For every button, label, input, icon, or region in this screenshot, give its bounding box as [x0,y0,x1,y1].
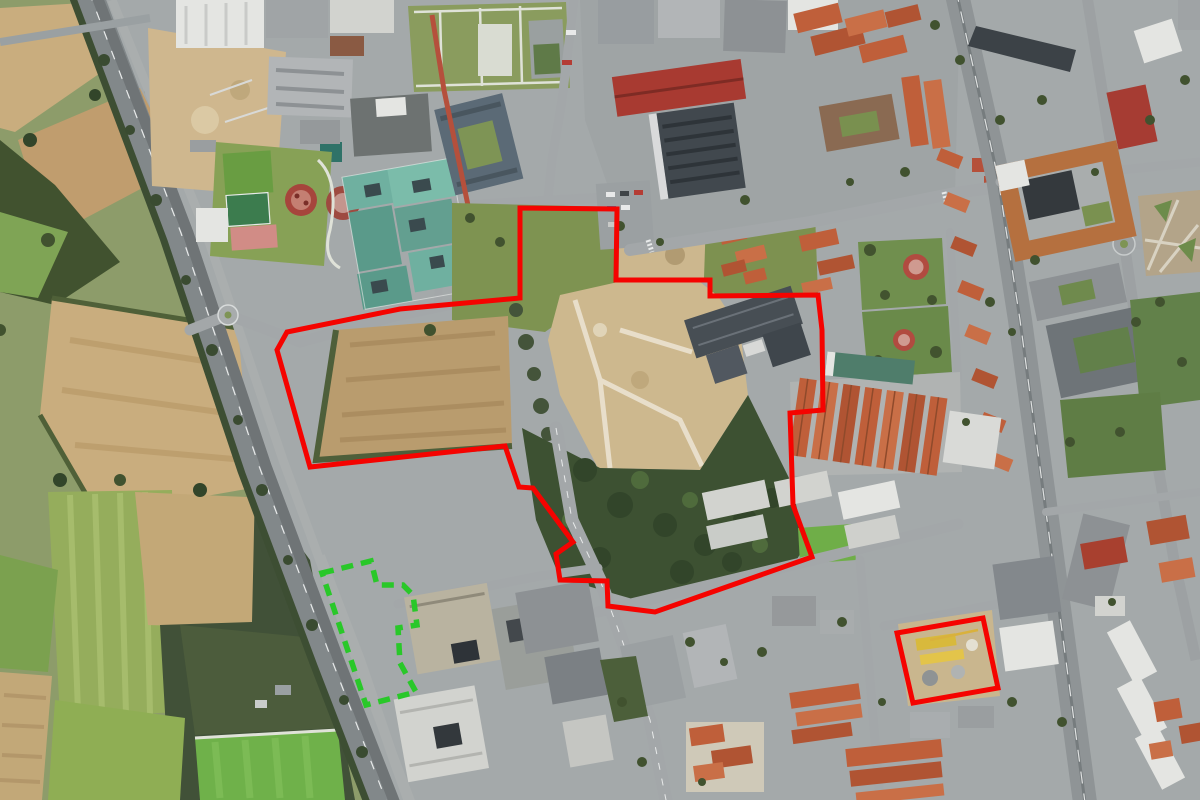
orange-house-cluster-south [686,722,764,792]
solar-roof-building [649,103,746,200]
large-flat-building-a [404,583,500,674]
basemap [0,0,1200,800]
parking-lot [596,180,654,250]
large-flat-building-b [394,685,489,782]
satellite-map-view[interactable] [0,0,1200,800]
